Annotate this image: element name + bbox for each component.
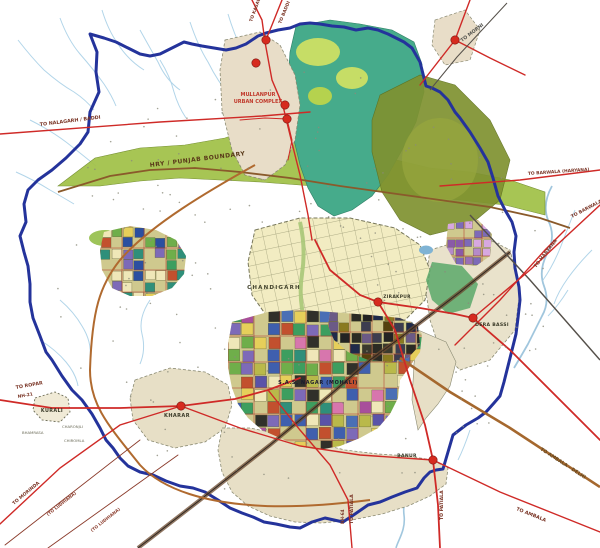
village-dot [131,160,133,162]
village-dot [501,177,503,179]
panchkula-block [483,249,491,257]
village-dot [377,284,379,286]
mohali-block [269,310,281,322]
west-block [102,238,112,248]
village-dot [444,271,446,273]
village-dot [417,237,419,239]
village-dot [236,469,238,471]
stream [18,40,94,110]
west-block [145,283,155,293]
village-dot [150,240,152,242]
town-label-dera-bassi: DERA BASSI [475,322,509,328]
village-dot [267,370,269,372]
village-dot [270,89,272,91]
town-label-kharar: KHARAR [164,413,190,419]
mohali-block [242,323,254,335]
west-block [146,238,156,248]
road-label: NH-64 [340,509,345,524]
village-dot [306,442,308,444]
west-block [123,293,132,303]
mohali-block [282,310,294,322]
mohali-block [293,324,305,336]
mohali-block [411,441,423,453]
village-dot [479,157,481,159]
mohali-block [372,390,384,402]
mohali-block [295,337,307,349]
village-dot [493,342,495,344]
town-marker [262,36,270,44]
village-dot [542,326,544,328]
panchkula-block [482,222,490,230]
panchkula-block [492,230,500,238]
village-dot [483,294,485,296]
village-dot [157,108,159,110]
village-dot [224,348,226,350]
mohali-block [268,350,280,362]
village-dot [261,179,263,181]
village-dot [342,402,344,404]
west-block [124,227,134,237]
village-dot [409,333,411,335]
mohali-block [282,388,294,400]
zirakpur-block [362,334,372,344]
west-block [112,281,122,291]
west-block [123,271,133,281]
zirakpur-block [350,344,360,354]
stream [40,340,78,386]
village-dot [57,288,59,290]
west-block [134,271,144,281]
panchkula-block [464,239,472,247]
village-dot [382,172,384,174]
village-dot [448,138,450,140]
village-dot [502,212,504,214]
west-block [155,248,165,257]
road-label: NH-21 [17,391,33,400]
mohali-block [230,363,242,375]
west-block [179,239,189,249]
west-block [134,261,144,271]
village-dot [419,334,421,336]
forest-patch [308,87,332,105]
village-dot [215,327,217,329]
village-dot [220,167,222,169]
panchkula-block [465,221,473,229]
mohali-block [398,402,410,414]
forest-patch [336,67,368,89]
village-dot [340,225,342,227]
village-dot [461,390,463,392]
mohali-block [241,363,253,375]
mohali-block [346,416,358,428]
village-dot [215,99,217,101]
village-dot [130,396,132,398]
village-dot [471,408,473,410]
mohali-block [268,362,280,374]
panchkula-block [456,249,464,257]
village-dot [263,474,265,476]
zirakpur-block [339,323,349,333]
village-dot [505,346,507,348]
road-label: TO PATIALA [349,494,355,524]
west-block [146,270,156,280]
mohali-block [332,402,344,414]
west-block [167,282,177,292]
village-dot [124,227,126,229]
zirakpur-block [384,332,394,342]
village-dot [265,429,267,431]
village-dot [450,163,452,165]
west-block [178,227,188,237]
village-dot [415,144,417,146]
village-dot [433,126,435,128]
village-dot [360,77,362,79]
village-dot [186,117,188,119]
mohali-block [320,414,332,426]
village-dot [150,399,152,401]
mohali-block [255,337,266,349]
sukhna-lake [419,246,433,255]
village-label: CHIROMLA [64,438,85,443]
town-label-chandigarh: CHANDIGARH [247,285,301,291]
panchkula-block [474,240,482,248]
mullanpur-urban-complex-label: MULLANPUR [240,92,275,98]
town-marker [374,298,382,306]
village-dot [194,214,196,216]
zirakpur-block [361,322,371,332]
west-block [134,292,144,302]
town-marker [451,36,459,44]
village-dot [487,365,489,367]
mohali-block [228,338,240,350]
stream [140,300,150,364]
west-block [178,293,188,303]
village-dot [534,230,536,232]
village-dot [371,415,373,417]
village-label: CHARONJLI [62,424,83,429]
panchkula-block [474,231,482,239]
village-dot [470,285,472,287]
mohali-block [332,415,344,427]
mohali-block [281,363,293,375]
village-dot [493,294,495,296]
village-dot [147,118,149,120]
village-dot [462,426,464,428]
village-dot [455,371,457,373]
mohali-block [411,429,423,441]
west-block [101,292,111,302]
village-dot [354,93,356,95]
mohali-block [307,336,319,348]
village-dot [204,221,206,223]
forest-olive-core [402,118,478,202]
village-dot [525,313,527,315]
mohali-block [347,389,359,401]
west-block [168,271,178,281]
mohali-block [384,441,396,453]
zirakpur-block [362,345,372,355]
village-dot [366,350,368,352]
village-dot [119,306,121,308]
west-block [122,283,132,293]
panchkula-block [456,240,464,248]
village-dot [210,288,212,290]
panchkula-block [465,257,473,265]
village-dot [531,314,533,316]
village-dot [303,71,305,73]
village-dot [153,401,155,403]
village-dot [157,185,159,187]
road-label: TO MORINDA [11,480,41,506]
west-block [146,294,156,304]
village-dot [535,348,537,350]
village-dot [234,356,236,358]
mohali-block [398,441,410,453]
village-dot [150,303,152,305]
west-block [134,249,144,258]
village-dot [516,326,518,328]
mohali-block [320,403,332,415]
mohali-block [295,389,307,401]
village-dot [125,285,127,287]
village-dot [298,364,300,366]
village-dot [395,271,397,273]
village-dot [166,282,168,284]
village-dot [530,303,532,305]
mohali-block [281,415,293,427]
village-dot [374,232,376,234]
mohali-block [267,415,279,427]
stream [554,250,592,304]
village-dot [468,302,470,304]
village-dot [529,350,531,352]
village-dot [414,472,416,474]
village-dot [317,131,319,133]
road-label: TO BADDI [277,0,292,25]
west-block [156,294,166,304]
village-dot [401,472,403,474]
village-dot [179,342,181,344]
mohali-block [255,415,267,427]
village-dot [159,210,161,212]
village-dot [463,347,465,349]
village-dot [164,429,166,431]
village-dot [259,128,261,130]
mohali-block [385,401,397,413]
west-block [112,249,122,259]
village-dot [230,179,232,181]
mohali-block [398,416,410,428]
mohali-block [307,325,319,337]
village-dot [224,431,226,433]
village-dot [110,141,112,143]
lpa-kurali [33,392,70,422]
village-dot [366,182,368,184]
village-dot [176,314,178,316]
mohali-block [295,312,307,324]
mohali-block [386,388,398,400]
mohali-block [242,337,254,349]
village-dot [167,371,169,373]
mohali-block [320,363,332,375]
village-dot [476,423,478,425]
mohali-block [306,428,318,440]
village-dot [307,165,309,167]
village-dot [94,169,96,171]
zirakpur-block [340,333,350,343]
mohali-block [268,402,280,414]
village-dot [207,273,209,275]
mohali-block [319,427,331,439]
village-dot [117,192,119,194]
mullanpur-urban-complex-label: URBAN COMPLEX [234,99,283,105]
forest-patch [296,38,340,66]
village-dot [408,147,410,149]
road-label: TO ROPAR [15,380,43,391]
mohali-block [306,364,318,376]
village-dot [176,135,178,137]
village-dot [221,112,223,114]
zirakpur-block [329,322,339,332]
mohali-block [230,310,242,322]
mohali-block [294,362,306,374]
panchkula-block [448,240,456,248]
village-dot [387,264,389,266]
mohali-block [347,428,359,440]
town-label-mohali: S.A.S. NAGAR (MOHALI) [278,380,358,386]
mohali-block [269,337,281,349]
village-dot [416,329,418,331]
village-dot [339,472,341,474]
mohali-block [398,428,410,440]
road-label: TO AMBALA - DELHI [539,447,587,481]
village-dot [299,211,301,213]
road-label: (TO LUDHIANA) [46,491,78,517]
mohali-block [307,350,319,362]
mohali-block [241,377,253,389]
village-dot [178,153,180,155]
village-dot [506,314,508,316]
village-dot [405,150,407,152]
village-dot [420,236,422,238]
mohali-block [254,363,266,375]
village-dot [80,367,82,369]
village-dot [126,308,128,310]
village-dot [157,455,159,457]
west-block [167,237,177,247]
village-dot [328,216,330,218]
mohali-block [307,310,319,322]
mohali-block [373,414,385,426]
mohali-block [307,414,319,426]
town-label-kurali: KURALI [41,408,63,414]
village-dot [318,127,320,129]
village-dot [155,246,157,248]
stream [160,60,186,118]
village-dot [112,340,114,342]
village-dot [310,203,312,205]
west-block [178,249,188,258]
town-marker [469,314,477,322]
mohali-block [242,311,254,323]
village-dot [402,228,404,230]
village-dot [360,237,362,239]
village-dot [386,365,388,367]
village-dot [261,221,263,223]
village-dot [371,256,373,258]
village-dot [488,422,490,424]
panchkula-block [484,240,492,248]
panchkula-block [473,248,481,256]
mohali-block [243,351,255,363]
village-dot [318,150,320,152]
town-marker [429,456,437,464]
west-block [179,281,189,291]
zirakpur-block [352,333,362,343]
town-marker [252,59,260,67]
village-dot [460,398,462,400]
road-label: (TO LUDHIANA) [90,507,122,533]
village-dot [126,381,128,383]
village-dot [288,358,290,360]
road-label: TO HARYANA [533,238,559,269]
village-dot [338,438,340,440]
mohali-block [228,349,240,361]
road-label: TO NALAGARH / BADDI [40,115,102,128]
village-dot [405,438,407,440]
village-dot [92,195,94,197]
mohali-block [386,416,398,428]
village-dot [482,283,484,285]
region-map[interactable]: HRY / PUNJAB BOUNDARYMULLANPURURBAN COMP… [0,0,600,548]
village-dot [327,186,329,188]
mohali-block [397,375,409,387]
village-dot [438,348,440,350]
village-dot [343,226,345,228]
west-block [177,270,187,280]
zirakpur-block [372,333,382,343]
village-dot [224,488,226,490]
west-block [123,237,133,247]
village-dot [249,205,251,207]
village-dot [361,320,363,322]
village-dot [231,456,233,458]
west-block [168,226,178,236]
village-dot [374,168,376,170]
mohali-block [371,401,383,413]
village-dot [474,395,476,397]
west-block [135,228,145,238]
stream [458,430,470,460]
map-canvas: HRY / PUNJAB BOUNDARYMULLANPURURBAN COMP… [0,0,600,548]
village-dot [387,406,389,408]
mohali-block [282,323,294,335]
village-dot [315,137,317,139]
village-dot [469,222,471,224]
village-dot [146,292,148,294]
village-dot [179,202,181,204]
village-dot [229,208,231,210]
mohali-block [294,350,306,362]
village-dot [87,167,89,169]
village-dot [60,316,62,318]
town-label-zirakpur: ZIRAKPUR [383,294,411,300]
village-dot [143,126,145,128]
village-dot [182,260,184,262]
village-dot [169,194,171,196]
village-dot [288,477,290,479]
village-dot [248,167,250,169]
